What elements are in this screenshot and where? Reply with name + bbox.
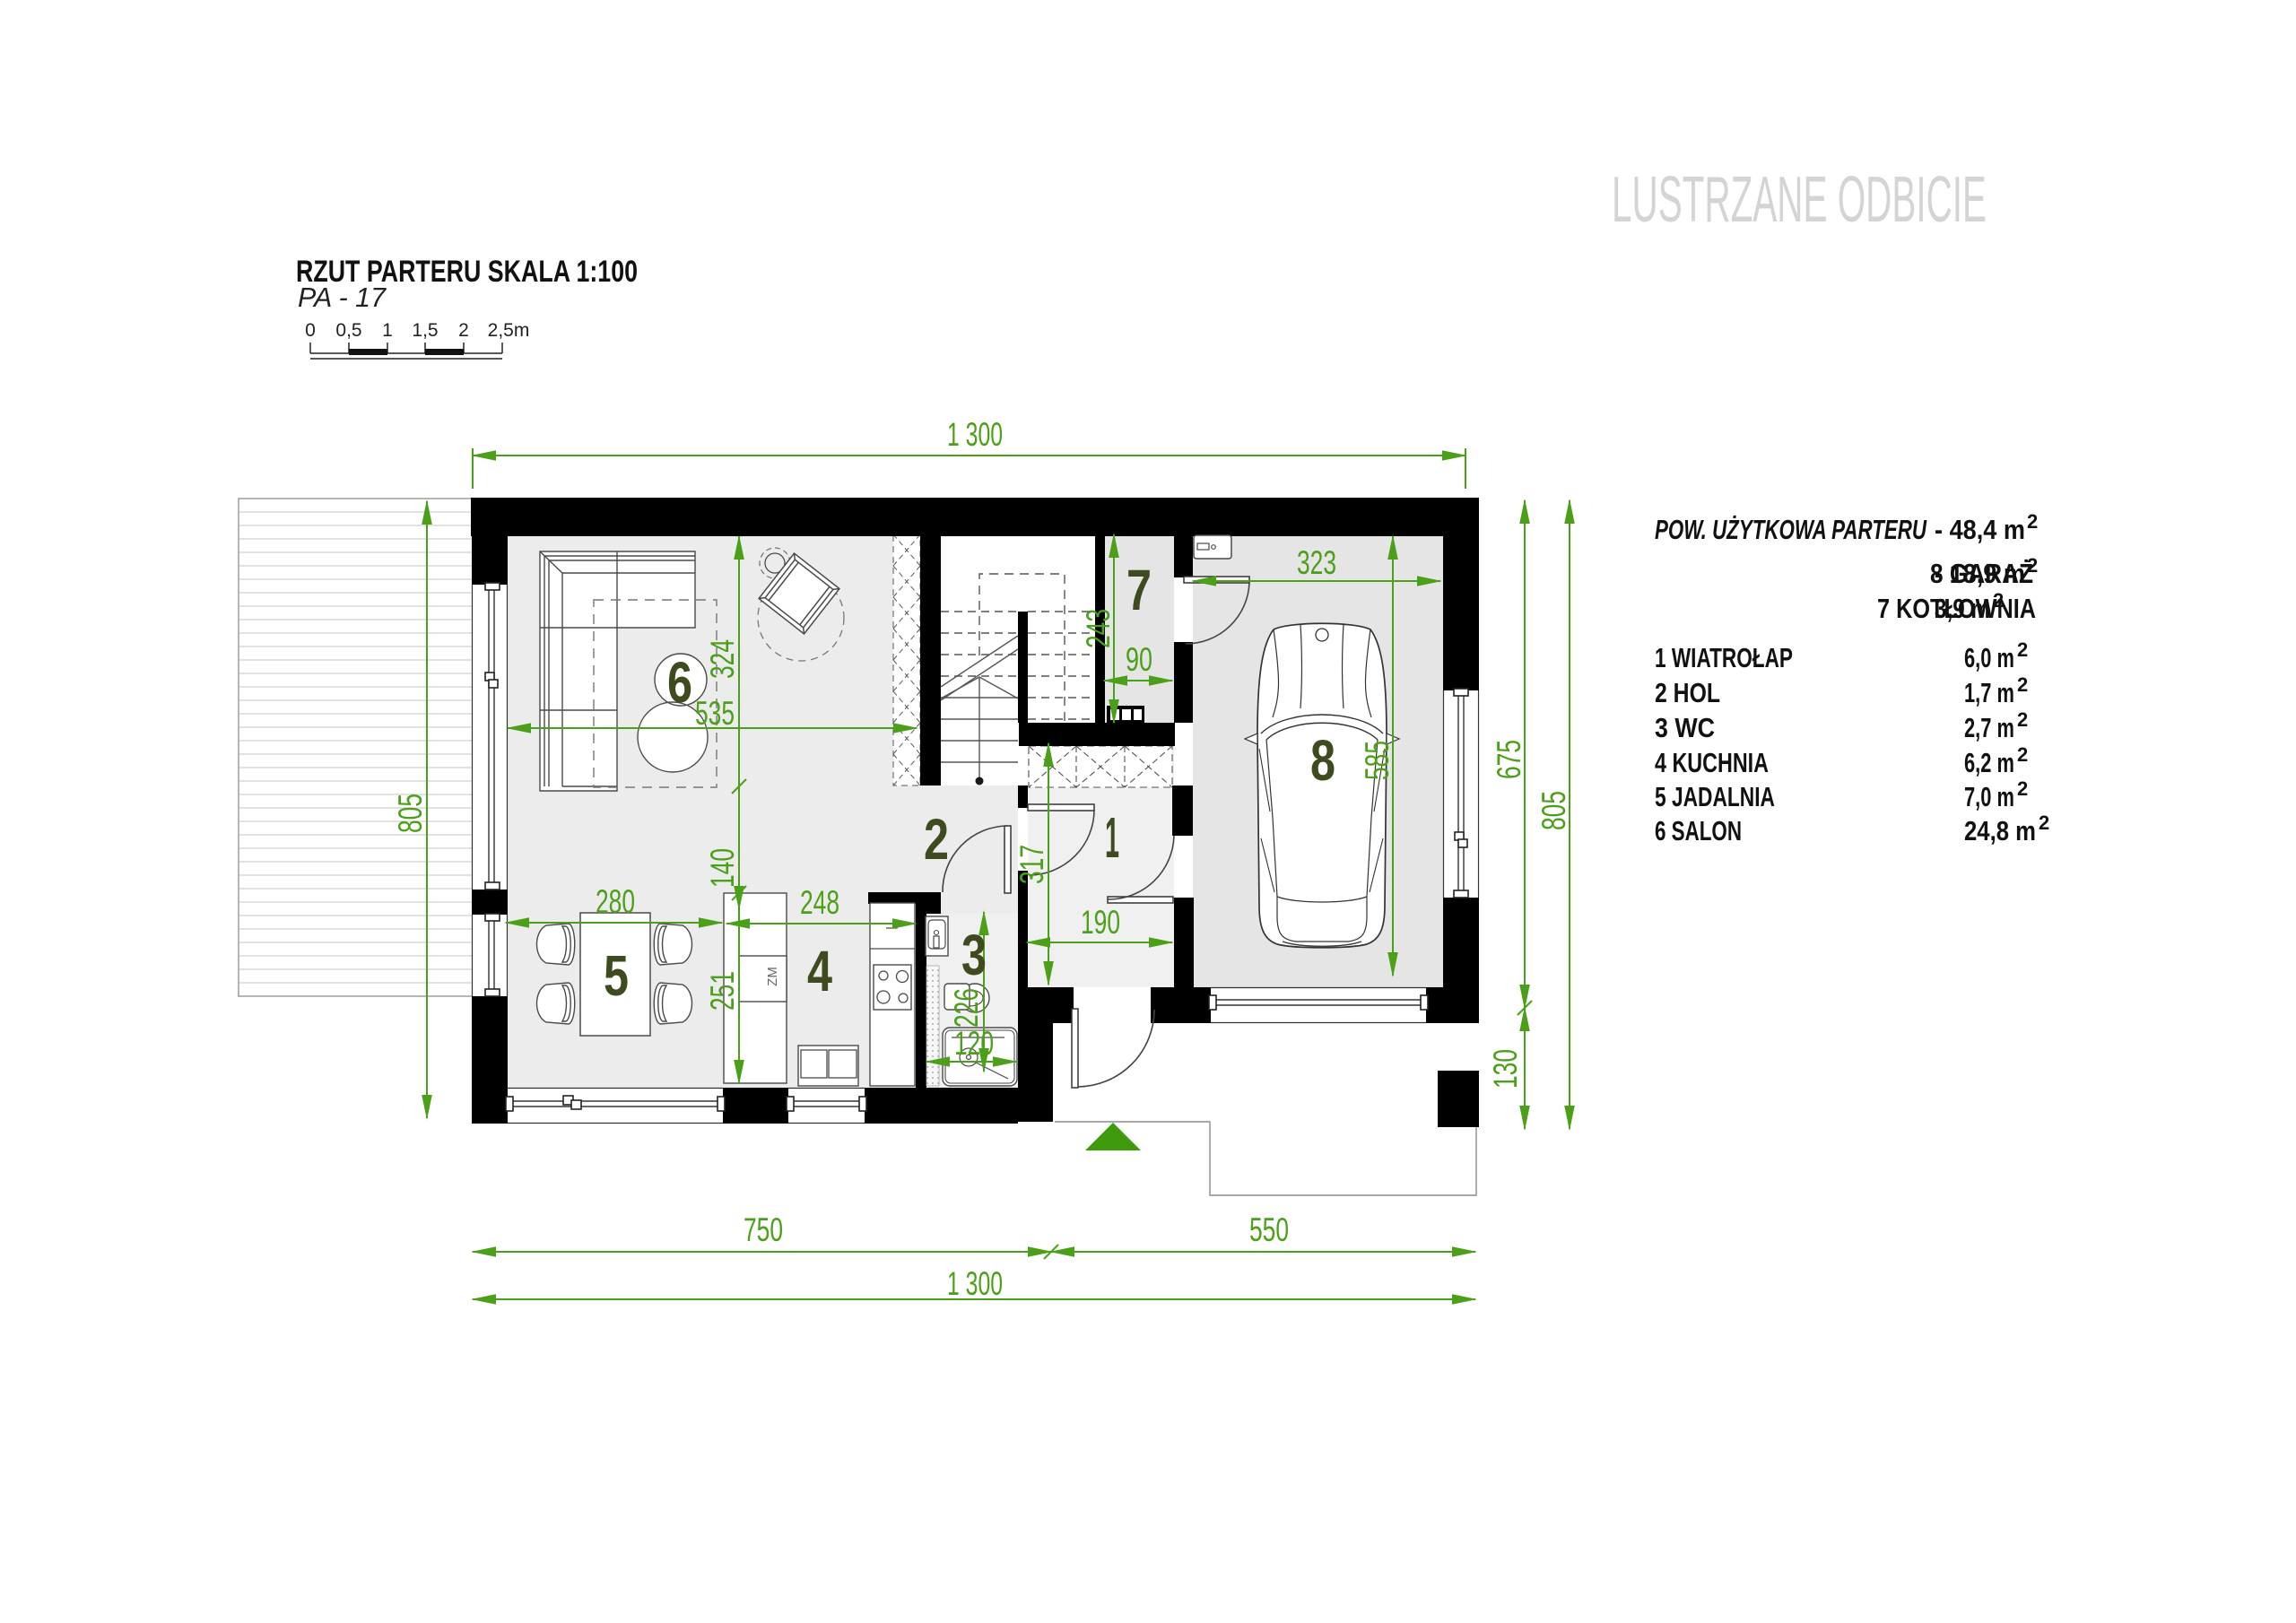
svg-text:1,5: 1,5 [412,320,438,341]
svg-text:280: 280 [596,883,635,920]
svg-text:535: 535 [695,695,735,732]
svg-text:3,9 m: 3,9 m [1935,593,1990,624]
svg-text:805: 805 [1535,791,1572,830]
svg-text:0,5: 0,5 [335,320,361,341]
svg-text:ZM: ZM [765,967,780,986]
svg-text:6: 6 [667,650,692,715]
svg-text:5 JADALNIA: 5 JADALNIA [1655,781,1775,812]
svg-text:4 KUCHNIA: 4 KUCHNIA [1655,747,1769,778]
svg-text:2: 2 [2017,708,2028,731]
svg-text:2: 2 [458,320,469,341]
svg-text:130: 130 [1487,1049,1524,1089]
svg-text:190: 190 [1081,904,1120,941]
svg-text:2: 2 [2039,811,2049,834]
svg-text:- 48,4 m: - 48,4 m [1935,514,2025,545]
svg-text:2: 2 [2017,743,2028,766]
svg-text:2,5m: 2,5m [488,320,530,341]
svg-text:POW. UŻYTKOWA PARTERU: POW. UŻYTKOWA PARTERU [1655,514,1927,545]
svg-text:2: 2 [2027,554,2038,577]
svg-text:0: 0 [305,320,316,341]
svg-text:750: 750 [744,1211,783,1248]
svg-text:550: 550 [1249,1211,1289,1248]
svg-text:LUSTRZANE ODBICIE: LUSTRZANE ODBICIE [1612,164,1987,236]
svg-text:PA - 17: PA - 17 [298,282,387,313]
svg-text:- 18,9 m: - 18,9 m [1935,558,2025,589]
svg-text:323: 323 [1297,544,1336,581]
svg-text:1: 1 [1105,805,1119,870]
svg-text:226: 226 [948,988,985,1028]
svg-text:120: 120 [954,1025,994,1062]
svg-text:7: 7 [1126,558,1152,622]
svg-text:24,8 m: 24,8 m [1964,815,2036,846]
svg-text:585: 585 [1359,741,1396,780]
svg-text:6,0 m: 6,0 m [1964,642,2014,673]
svg-text:675: 675 [1491,740,1527,779]
svg-text:2: 2 [1993,589,2004,612]
svg-text:317: 317 [1013,845,1050,884]
svg-text:90: 90 [1126,641,1152,678]
svg-text:2: 2 [2017,673,2028,696]
svg-text:1 300: 1 300 [947,1265,1003,1302]
svg-text:2,7 m: 2,7 m [1964,712,2014,743]
svg-text:1: 1 [382,320,393,341]
svg-text:324: 324 [704,639,741,679]
svg-text:2: 2 [924,807,949,872]
svg-text:1 300: 1 300 [947,416,1003,453]
svg-text:2 HOL: 2 HOL [1655,677,1720,708]
svg-text:8: 8 [1310,728,1335,793]
svg-text:2: 2 [2017,638,2028,661]
svg-text:6,2 m: 6,2 m [1964,747,2014,778]
svg-text:5: 5 [604,943,629,1008]
svg-text:6 SALON: 6 SALON [1655,815,1742,846]
svg-text:248: 248 [800,884,839,921]
svg-text:2: 2 [2017,777,2028,800]
svg-text:805: 805 [392,794,429,833]
svg-text:1 WIATROŁAP: 1 WIATROŁAP [1655,642,1793,673]
svg-text:140: 140 [704,848,741,888]
svg-text:243: 243 [1080,609,1117,648]
svg-text:7,0 m: 7,0 m [1964,781,2014,812]
svg-text:1,7 m: 1,7 m [1964,677,2014,708]
svg-text:3 WC: 3 WC [1655,712,1715,743]
svg-text:3: 3 [961,923,987,987]
svg-text:2: 2 [2027,510,2038,533]
svg-text:4: 4 [807,939,832,1003]
svg-text:251: 251 [704,971,741,1011]
